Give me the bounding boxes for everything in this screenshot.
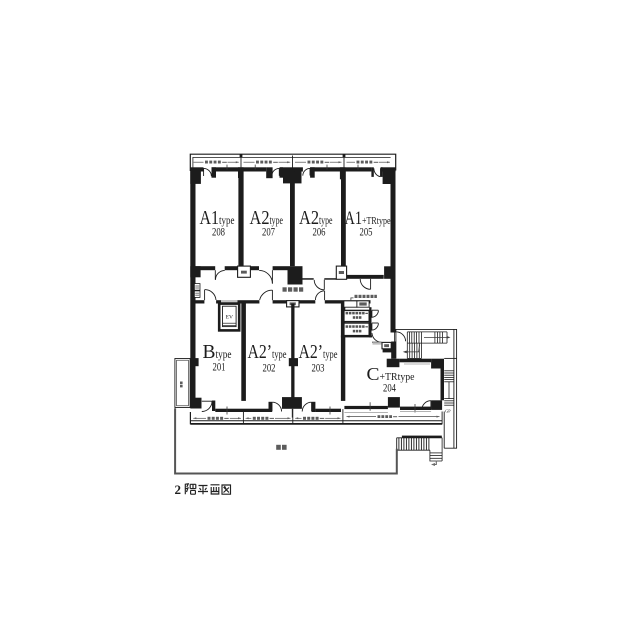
svg-text:201: 201 — [213, 360, 226, 374]
svg-text:207: 207 — [262, 225, 275, 239]
svg-text:208: 208 — [212, 225, 225, 239]
svg-text:205: 205 — [360, 225, 373, 239]
svg-text:206: 206 — [313, 225, 326, 239]
svg-text:202: 202 — [263, 361, 276, 375]
svg-text:2: 2 — [175, 482, 182, 497]
svg-text:EV: EV — [226, 315, 233, 321]
svg-text:GP: GP — [445, 408, 451, 413]
svg-text:203: 203 — [312, 361, 325, 375]
svg-text:204: 204 — [383, 383, 396, 395]
